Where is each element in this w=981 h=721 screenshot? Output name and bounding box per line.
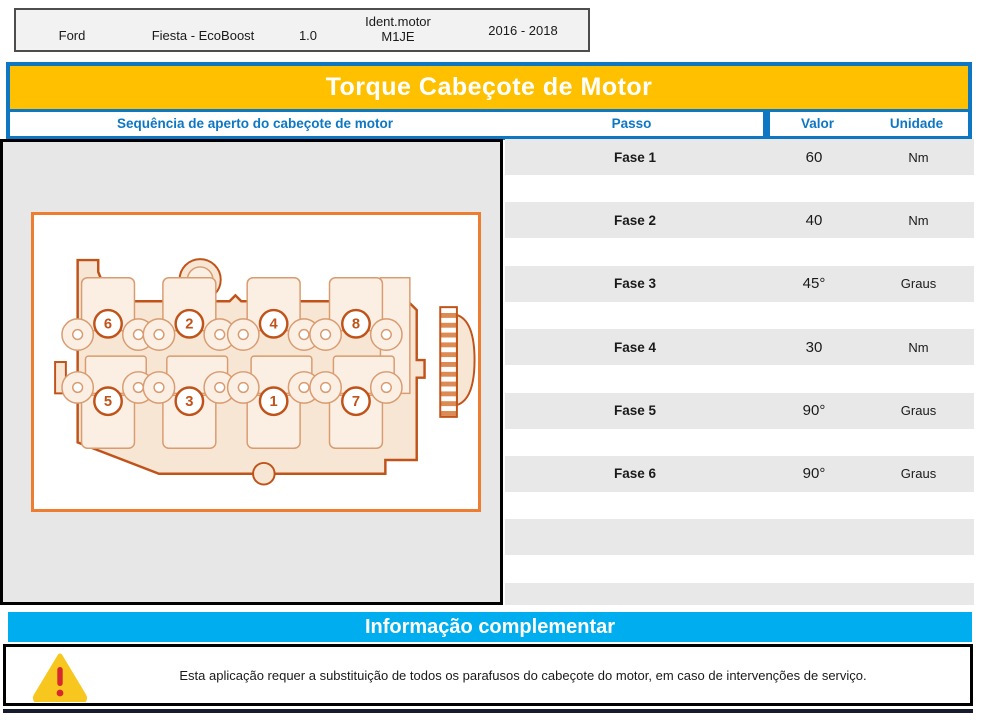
step-unit: Nm [863,150,974,165]
step-value: 90° [765,402,863,419]
step-label: Fase 5 [505,403,765,418]
section-title-bar: Torque Cabeçote de Motor [10,66,968,109]
engine-ident-label: Ident.motor [365,14,431,29]
vehicle-years: 2016 - 2018 [458,10,588,50]
vehicle-header: Ford Fiesta - EcoBoost 1.0 Ident.motor M… [14,8,590,52]
table-row: Fase 5 90° Graus [505,393,974,456]
header-unit: Unidade [865,112,968,136]
bolt-number: 7 [352,394,360,410]
complementary-info-title: Informação complementar [365,616,615,639]
step-label: Fase 1 [505,150,765,165]
step-label: Fase 2 [505,213,765,228]
bolt-number: 5 [104,394,112,410]
header-divider [763,112,770,136]
engine-head-diagram: 6 2 4 8 5 3 1 7 [31,212,481,512]
bottom-border-bar [3,709,973,713]
engine-capacity: 1.0 [278,10,338,50]
bolt-number: 6 [104,317,112,333]
warning-triangle-icon [32,652,88,702]
header-step: Passo [500,112,763,136]
cylinder-head-illustration: 6 2 4 8 5 3 1 7 [34,215,478,509]
step-value: 60 [765,149,863,166]
step-value: 30 [765,339,863,356]
step-label: Fase 6 [505,466,765,481]
table-row-empty [505,583,974,605]
timing-belt-band [440,307,457,417]
step-unit: Graus [863,466,974,481]
header-value: Valor [770,112,865,136]
vehicle-model: Fiesta - EcoBoost [128,10,278,50]
step-label: Fase 3 [505,276,765,291]
table-row: Fase 2 40 Nm [505,202,974,265]
table-row: Fase 1 60 Nm [505,139,974,202]
step-unit: Graus [863,276,974,291]
bolt-number: 1 [270,394,278,410]
step-label: Fase 4 [505,340,765,355]
bolt-number: 4 [270,317,279,333]
complementary-info-bar: Informação complementar [8,612,972,642]
torque-spec-page: Ford Fiesta - EcoBoost 1.0 Ident.motor M… [0,0,981,721]
warning-box: Esta aplicação requer a substituição de … [3,644,973,706]
table-row-empty [505,519,974,582]
bolt-number: 2 [185,317,193,333]
tightening-sequence-diagram-panel: 6 2 4 8 5 3 1 7 [0,139,503,605]
engine-ident: Ident.motor M1JE [338,10,458,50]
header-sequence: Sequência de aperto do cabeçote de motor [10,112,500,136]
engine-code: M1JE [381,29,414,44]
torque-section-frame: Torque Cabeçote de Motor Sequência de ap… [6,62,972,140]
bolt-number: 8 [352,317,360,333]
torque-steps-table: Fase 1 60 Nm Fase 2 40 Nm Fase 3 45° Gra… [505,139,974,605]
step-value: 40 [765,212,863,229]
table-row: Fase 6 90° Graus [505,456,974,519]
step-unit: Graus [863,403,974,418]
step-unit: Nm [863,213,974,228]
table-row: Fase 4 30 Nm [505,329,974,392]
table-header-row: Sequência de aperto do cabeçote de motor… [10,112,968,136]
step-unit: Nm [863,340,974,355]
table-row: Fase 3 45° Graus [505,266,974,329]
step-value: 45° [765,275,863,292]
vehicle-make: Ford [16,10,128,50]
page-title: Torque Cabeçote de Motor [326,73,653,102]
bolt-number: 3 [185,394,193,410]
step-value: 90° [765,465,863,482]
warning-text: Esta aplicação requer a substituição de … [96,647,950,703]
